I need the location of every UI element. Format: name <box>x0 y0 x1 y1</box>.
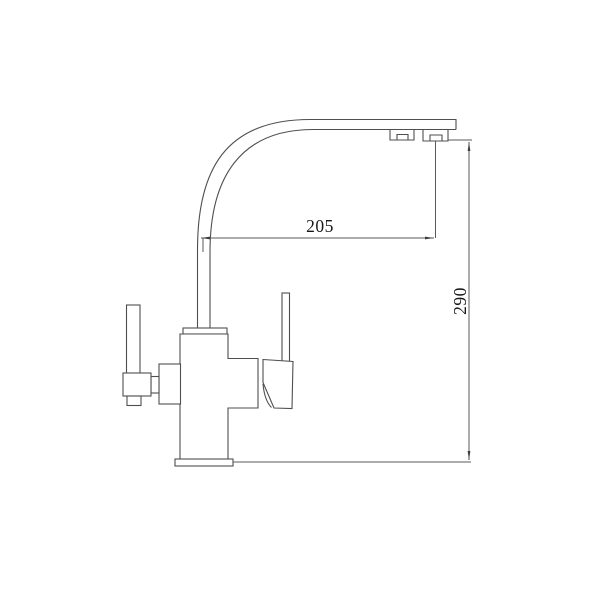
faucet-body <box>123 328 293 466</box>
right-handle-lever <box>282 293 290 363</box>
arrowhead-right <box>425 237 434 240</box>
left-handle-block <box>123 373 151 396</box>
body-top-collar <box>183 328 227 334</box>
aerator-left-inner <box>397 135 408 141</box>
dimension-vertical-label: 290 <box>450 287 470 315</box>
left-valve-connector <box>151 377 159 394</box>
dimension-vertical: 290 <box>448 140 472 460</box>
left-handle-lever <box>127 305 141 375</box>
aerator-right-inner <box>430 135 442 141</box>
arrowhead-up <box>468 142 471 151</box>
drawing-canvas: 205 290 <box>0 0 600 600</box>
dimension-horizontal-label: 205 <box>306 216 334 236</box>
left-handle-foot <box>127 396 141 406</box>
dimension-horizontal: 205 <box>201 141 436 252</box>
left-valve-block <box>159 364 181 404</box>
arrowhead-left <box>201 237 210 240</box>
body-column <box>180 334 258 459</box>
base-flange <box>175 459 233 466</box>
faucet-technical-drawing: 205 290 <box>0 0 600 600</box>
arrowhead-down <box>468 451 471 460</box>
